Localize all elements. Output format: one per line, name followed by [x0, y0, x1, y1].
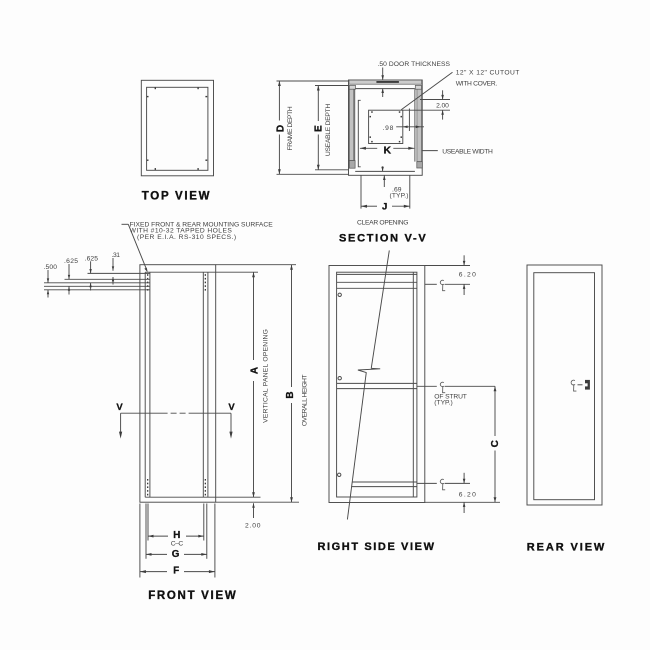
svg-text:VERTICAL PANEL OPENING: VERTICAL PANEL OPENING — [262, 329, 269, 423]
svg-text:FRONT VIEW: FRONT VIEW — [148, 590, 237, 602]
svg-text:REAR VIEW: REAR VIEW — [527, 541, 606, 553]
svg-text:F: F — [173, 565, 179, 576]
svg-text:.50 DOOR THICKNESS: .50 DOOR THICKNESS — [377, 61, 450, 68]
svg-text:A: A — [249, 367, 260, 374]
svg-text:6.20: 6.20 — [459, 271, 476, 278]
svg-text:12" X 12" CUTOUT: 12" X 12" CUTOUT — [456, 69, 520, 76]
svg-text:6.20: 6.20 — [459, 491, 476, 498]
svg-text:USEABLE WIDTH: USEABLE WIDTH — [442, 149, 493, 156]
svg-text:J: J — [382, 202, 387, 213]
svg-text:V: V — [228, 402, 235, 413]
svg-text:TOP VIEW: TOP VIEW — [142, 191, 211, 203]
svg-text:(TYP.): (TYP.) — [390, 193, 409, 200]
svg-text:SECTION V-V: SECTION V-V — [339, 232, 427, 244]
svg-text:C: C — [490, 440, 501, 447]
svg-text:H: H — [173, 530, 180, 541]
svg-text:E: E — [313, 125, 324, 132]
svg-text:OVERALL HEIGHT: OVERALL HEIGHT — [301, 374, 308, 426]
svg-text:V: V — [116, 402, 123, 413]
svg-text:FRAME DEPTH: FRAME DEPTH — [287, 106, 294, 150]
svg-text:.625: .625 — [64, 258, 78, 265]
svg-text:B: B — [285, 391, 296, 398]
svg-text:2.00: 2.00 — [436, 103, 449, 110]
svg-text:K: K — [384, 145, 392, 157]
svg-text:CLEAR OPENING: CLEAR OPENING — [357, 219, 409, 226]
svg-text:USEABLE DEPTH: USEABLE DEPTH — [325, 104, 332, 157]
svg-text:G: G — [172, 549, 180, 560]
svg-text:2.00: 2.00 — [245, 522, 261, 529]
svg-text:(TYP.): (TYP.) — [434, 399, 452, 406]
svg-text:(PER E.I.A. RS-310 SPECS.): (PER E.I.A. RS-310 SPECS.) — [137, 234, 236, 241]
svg-text:RIGHT SIDE VIEW: RIGHT SIDE VIEW — [317, 541, 435, 553]
svg-text:C–C: C–C — [171, 541, 184, 548]
svg-text:D: D — [275, 125, 286, 132]
svg-text:.98: .98 — [383, 125, 394, 132]
svg-text:.31: .31 — [112, 252, 121, 259]
svg-text:WITH COVER.: WITH COVER. — [456, 80, 498, 87]
svg-text:.500: .500 — [43, 264, 57, 271]
svg-text:.625: .625 — [85, 255, 99, 262]
